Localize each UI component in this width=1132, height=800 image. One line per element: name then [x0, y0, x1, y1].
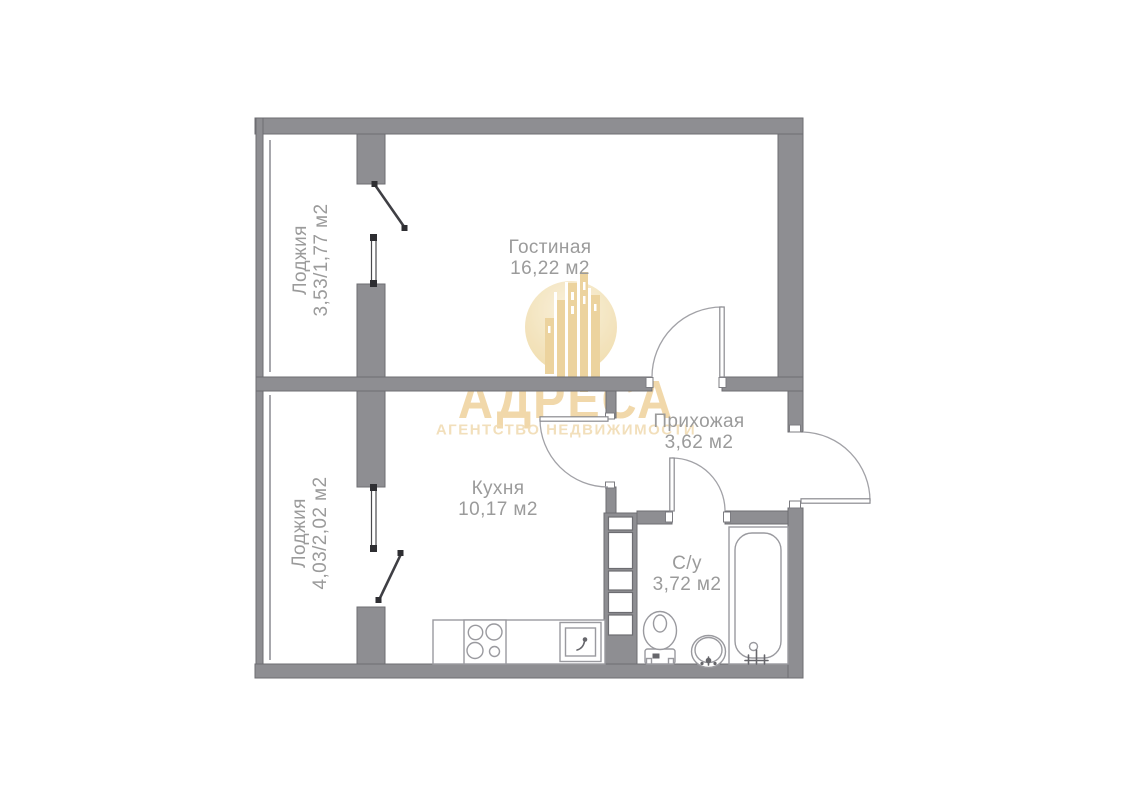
door-swing-entrance [801, 432, 870, 503]
toilet-icon [644, 612, 677, 665]
balcony-door-icon [376, 550, 404, 603]
window-icon [370, 484, 377, 552]
ventilation-shaft-icon [609, 517, 633, 635]
door-jambs [606, 378, 801, 523]
door-swing-bathroom [670, 458, 725, 511]
bathtub-icon [729, 527, 788, 664]
floorplan-drawing [0, 0, 1132, 800]
window-icon [370, 234, 377, 287]
washbasin-icon [692, 636, 726, 668]
walls [255, 118, 803, 678]
door-swing-kitchen [540, 417, 608, 487]
balcony-door-icon [372, 181, 408, 231]
floorplan-canvas: АДРЕСА АГЕНТСТВО НЕДВИЖИМОСТИ [0, 0, 1132, 800]
kitchen-sink-icon [560, 623, 601, 662]
door-swing-living [652, 307, 724, 377]
stove-icon [464, 620, 506, 664]
